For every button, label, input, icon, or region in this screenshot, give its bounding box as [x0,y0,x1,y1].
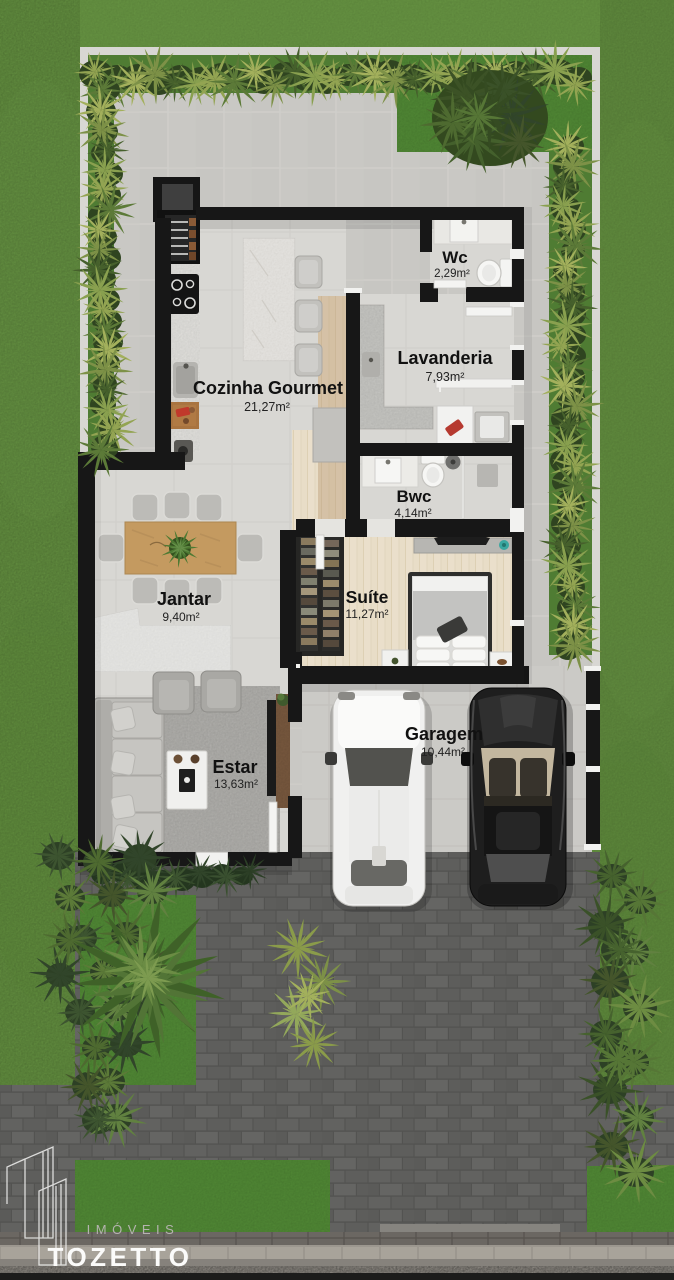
svg-text:Garagem: Garagem [405,724,483,744]
svg-text:Estar: Estar [212,757,257,777]
svg-text:Suíte: Suíte [346,587,389,607]
svg-text:21,27m²: 21,27m² [244,400,290,414]
svg-text:13,63m²: 13,63m² [214,777,258,791]
svg-text:IMÓVEIS: IMÓVEIS [87,1222,180,1237]
svg-text:10,44m²: 10,44m² [421,745,465,759]
svg-text:2,29m²: 2,29m² [434,268,470,280]
svg-text:Wc: Wc [442,248,468,267]
svg-text:9,40m²: 9,40m² [162,610,199,624]
svg-text:Lavanderia: Lavanderia [397,348,493,368]
svg-text:Bwc: Bwc [397,487,432,506]
svg-text:Jantar: Jantar [157,589,211,609]
svg-text:11,27m²: 11,27m² [345,607,388,621]
svg-text:Cozinha Gourmet: Cozinha Gourmet [193,378,343,398]
svg-text:TOZETTO: TOZETTO [48,1242,193,1272]
svg-text:4,14m²: 4,14m² [394,506,431,520]
svg-text:7,93m²: 7,93m² [426,370,465,384]
